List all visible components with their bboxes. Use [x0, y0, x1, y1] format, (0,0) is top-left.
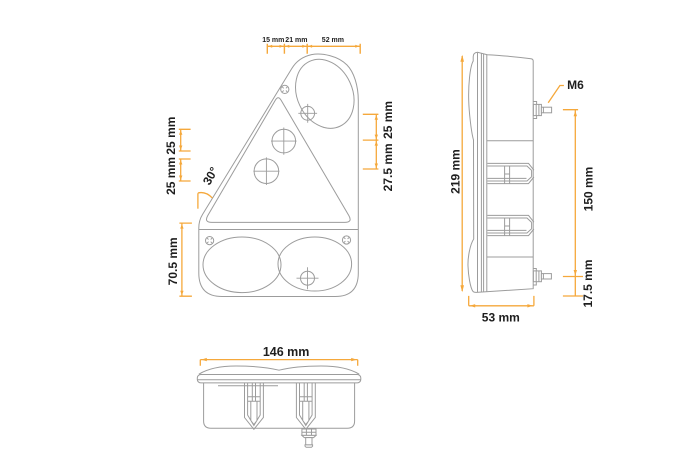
svg-text:25 mm: 25 mm: [381, 101, 395, 139]
svg-text:52 mm: 52 mm: [322, 37, 344, 44]
svg-text:17.5 mm: 17.5 mm: [581, 259, 595, 307]
svg-text:M6: M6: [567, 78, 584, 92]
svg-text:27.5 mm: 27.5 mm: [381, 143, 395, 191]
svg-text:53 mm: 53 mm: [482, 311, 520, 325]
svg-text:21 mm: 21 mm: [285, 37, 307, 44]
svg-text:150 mm: 150 mm: [582, 167, 596, 212]
svg-text:70.5 mm: 70.5 mm: [166, 237, 180, 285]
svg-text:25 mm: 25 mm: [164, 157, 178, 195]
svg-text:219 mm: 219 mm: [448, 149, 462, 194]
svg-text:30°: 30°: [200, 164, 221, 187]
svg-text:25 mm: 25 mm: [164, 117, 178, 155]
svg-text:146 mm: 146 mm: [263, 345, 310, 359]
svg-text:15 mm: 15 mm: [262, 37, 284, 44]
